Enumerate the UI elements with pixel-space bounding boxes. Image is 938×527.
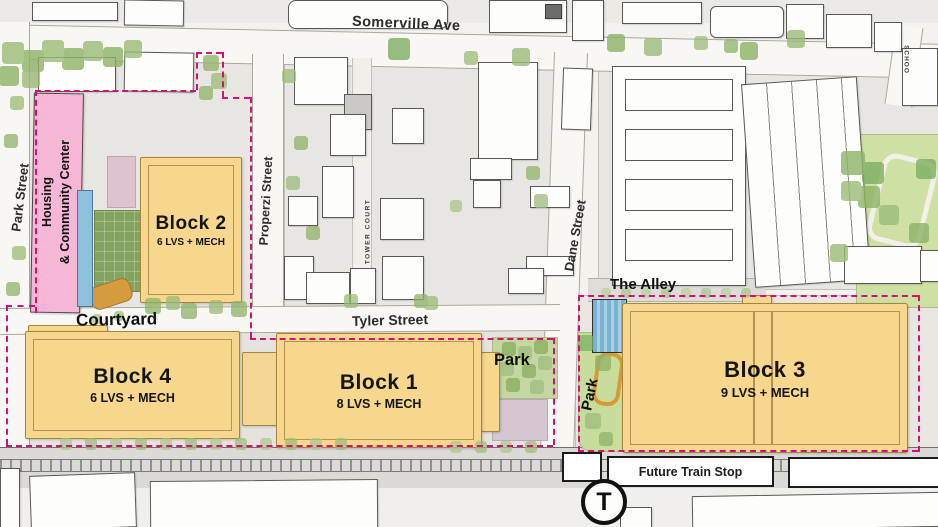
site-boundary-segment: [578, 295, 918, 297]
building: [786, 4, 824, 39]
site-boundary-segment: [553, 338, 555, 445]
building: [322, 166, 354, 218]
pool-blue-strip: [77, 190, 93, 307]
plaza-mauve-small: [107, 156, 136, 208]
building: [508, 268, 544, 294]
site-boundary-segment: [196, 52, 222, 54]
street-label-school: SCHOO: [903, 38, 910, 82]
building: [350, 268, 376, 304]
roof-bay: [625, 79, 733, 111]
building: [561, 67, 593, 130]
building: [0, 468, 20, 527]
block-3-label: Block 3: [724, 357, 806, 383]
platform: [562, 452, 602, 482]
block-3-levels: 9 LVS + MECH: [721, 385, 809, 400]
building: [545, 4, 562, 19]
future-train-stop-label: Future Train Stop: [639, 465, 742, 479]
building: [124, 0, 184, 27]
block-1-label: Block 1: [340, 371, 418, 395]
building: [29, 472, 137, 527]
housing-label-line2: & Community Center: [56, 140, 74, 264]
building: [826, 14, 872, 48]
block-2-building: Block 2 6 LVS + MECH: [140, 157, 242, 303]
building: [692, 492, 938, 527]
t-logo-letter: T: [596, 488, 611, 517]
block-4-levels: 6 LVS + MECH: [90, 391, 175, 405]
housing-label: Housing & Community Center: [36, 96, 76, 308]
building: [392, 108, 424, 144]
roof-bay: [625, 229, 733, 261]
warehouse-slat-building: [612, 66, 746, 286]
platform: [788, 457, 938, 488]
site-boundary-segment: [35, 90, 196, 92]
site-boundary-segment: [578, 295, 580, 452]
housing-label-line1: Housing: [38, 177, 56, 227]
building: [150, 479, 378, 527]
building: [470, 158, 512, 180]
building: [473, 180, 501, 208]
building: [844, 246, 922, 284]
block-4-building: Block 4 6 LVS + MECH: [25, 331, 240, 439]
block-1-building: Block 1 8 LVS + MECH: [276, 333, 482, 448]
roof-bay: [625, 129, 733, 161]
block-3-building: Block 3 9 LVS + MECH: [622, 303, 908, 453]
building: [478, 62, 538, 160]
site-boundary-segment: [578, 450, 918, 452]
site-boundary-segment: [6, 305, 35, 307]
site-boundary-segment: [222, 97, 250, 99]
the-alley-label: The Alley: [610, 276, 676, 293]
building: [38, 57, 116, 92]
mbta-t-icon: T: [581, 479, 627, 525]
block-4-label: Block 4: [93, 365, 171, 389]
street-label-tower-court: TOWER COURT: [365, 184, 372, 280]
block-2-label: Block 2: [155, 213, 226, 235]
courtyard-label: Courtyard: [76, 309, 158, 330]
site-boundary-segment: [250, 338, 553, 340]
site-boundary-segment: [6, 305, 8, 445]
site-boundary-segment: [918, 295, 920, 452]
site-boundary-segment: [196, 52, 198, 90]
building: [572, 0, 604, 41]
site-boundary-segment: [250, 97, 252, 338]
building: [920, 250, 938, 282]
plaza-mauve: [492, 399, 548, 441]
building: [710, 6, 784, 38]
roof-bay: [625, 179, 733, 211]
future-train-stop-sign: Future Train Stop: [607, 456, 774, 487]
building: [530, 186, 570, 208]
park-label-east: Park: [494, 351, 530, 370]
block-connector: [242, 352, 278, 426]
building: [288, 196, 318, 226]
site-boundary-segment: [222, 52, 224, 97]
block-2-levels: 6 LVS + MECH: [157, 237, 225, 248]
building: [124, 51, 195, 92]
building: [306, 272, 350, 304]
building: [874, 22, 902, 52]
building: [382, 256, 424, 300]
building: [622, 2, 702, 24]
site-plan-map: Block 2 6 LVS + MECH Block 4 6 LVS + MEC…: [0, 0, 938, 527]
building: [32, 2, 118, 21]
site-boundary-segment: [6, 445, 553, 447]
building: [380, 198, 424, 240]
block-1-levels: 8 LVS + MECH: [337, 397, 422, 411]
building: [294, 57, 348, 105]
street-label-tyler: Tyler Street: [352, 311, 428, 329]
building: [330, 114, 366, 156]
